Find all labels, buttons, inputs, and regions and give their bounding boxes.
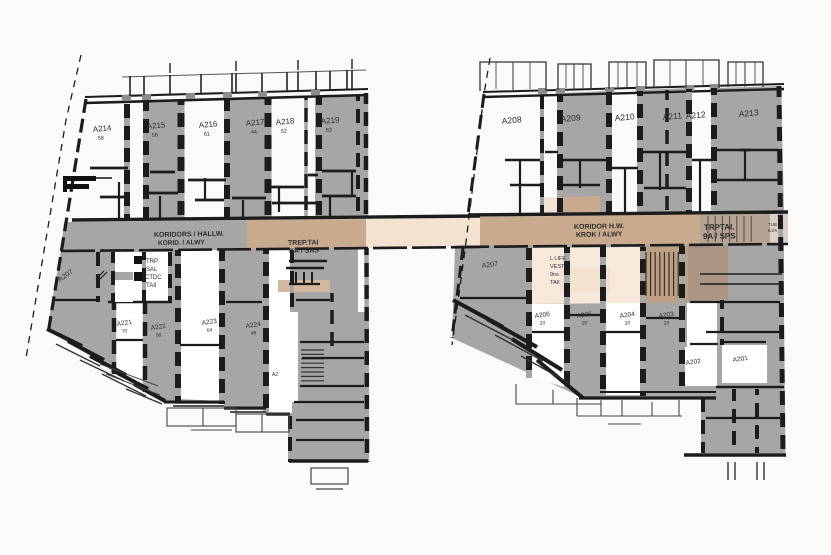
- svg-text:SAL: SAL: [146, 267, 158, 273]
- svg-text:44: 44: [251, 129, 258, 136]
- svg-text:58: 58: [98, 135, 105, 142]
- svg-text:KORIDORS / HALLW.: KORIDORS / HALLW.: [154, 231, 224, 239]
- svg-text:TUB: TUB: [768, 222, 777, 227]
- svg-text:KORID. / ALWY: KORID. / ALWY: [158, 239, 205, 247]
- svg-text:63: 63: [326, 127, 333, 134]
- svg-text:A216: A216: [198, 119, 218, 130]
- svg-text:9ns: 9ns: [550, 272, 559, 278]
- svg-text:56: 56: [152, 132, 159, 139]
- svg-text:A217: A217: [245, 117, 265, 128]
- svg-text:A210: A210: [614, 111, 635, 123]
- svg-text:20: 20: [624, 320, 631, 327]
- svg-text:KROK / ALWY: KROK / ALWY: [576, 231, 623, 239]
- svg-text:61: 61: [204, 131, 211, 138]
- svg-text:A208: A208: [501, 114, 522, 126]
- svg-text:20: 20: [539, 320, 546, 327]
- svg-text:KA / SAS: KA / SAS: [289, 247, 320, 255]
- svg-text:20: 20: [581, 320, 588, 327]
- svg-text:A219: A219: [320, 115, 340, 126]
- svg-text:KORIDOR H.W.: KORIDOR H.W.: [574, 223, 624, 231]
- svg-text:TRP.: TRP.: [146, 259, 159, 265]
- svg-text:TAII: TAII: [146, 283, 157, 289]
- svg-text:A215: A215: [146, 120, 166, 131]
- svg-text:A213: A213: [738, 107, 759, 119]
- svg-text:58: 58: [155, 332, 162, 339]
- svg-text:20: 20: [663, 320, 670, 327]
- svg-text:52: 52: [281, 128, 288, 135]
- svg-text:49: 49: [250, 330, 257, 337]
- svg-text:A209: A209: [560, 112, 581, 124]
- svg-text:ILVA: ILVA: [768, 228, 777, 233]
- svg-text:A214: A214: [92, 123, 112, 134]
- svg-text:TREP.TAI: TREP.TAI: [288, 239, 319, 247]
- svg-text:CTDC: CTDC: [145, 275, 162, 281]
- svg-text:A2: A2: [272, 372, 278, 378]
- svg-text:TAII: TAII: [550, 280, 560, 286]
- svg-text:9A / SPS: 9A / SPS: [703, 231, 736, 241]
- svg-text:VEST: VEST: [550, 264, 565, 270]
- svg-text:L LIFE: L LIFE: [550, 256, 566, 262]
- svg-text:A211: A211: [662, 110, 682, 122]
- svg-text:A218: A218: [275, 116, 295, 127]
- svg-text:64: 64: [206, 327, 213, 334]
- svg-text:A212: A212: [685, 109, 706, 121]
- svg-text:70: 70: [121, 328, 128, 335]
